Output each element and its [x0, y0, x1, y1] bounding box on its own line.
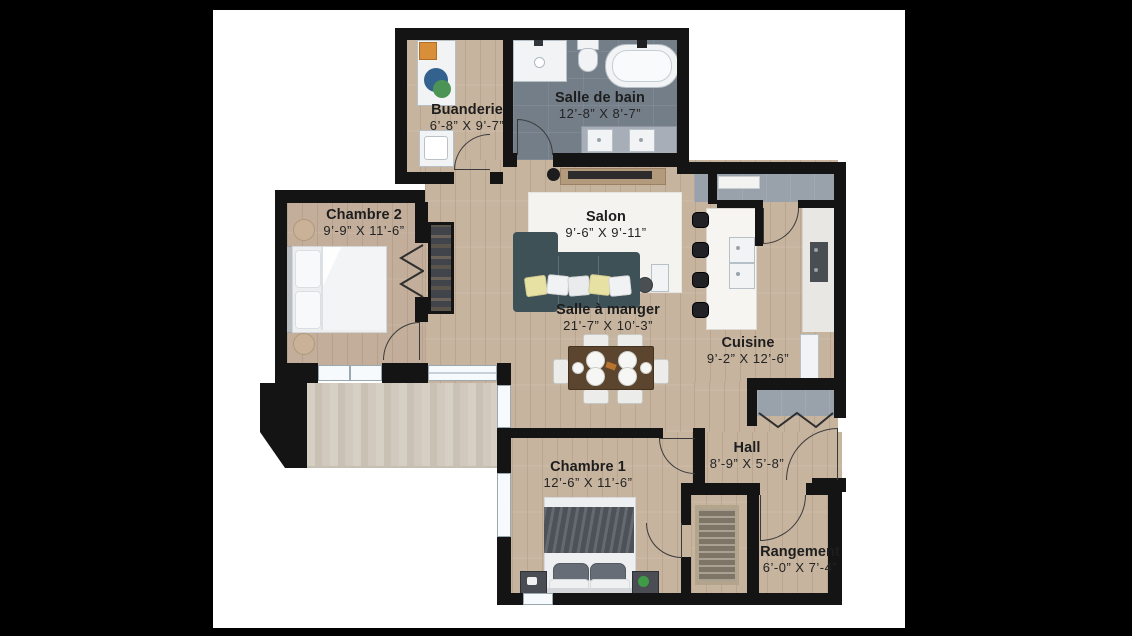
wall [275, 363, 318, 383]
fridge [800, 334, 819, 380]
sink-drain-icon [597, 138, 601, 142]
floor-plan: Buanderie 6’-8” X 9’-7” Salle de bain 12… [0, 0, 1132, 636]
wardrobe-closet [428, 222, 454, 314]
throw-pillow [546, 274, 570, 296]
bar-stool [692, 212, 709, 228]
plate-icon [586, 367, 605, 386]
wall [708, 174, 717, 204]
island-cooktop [729, 263, 755, 289]
wall [747, 483, 759, 605]
wall [395, 28, 689, 40]
throw-pillow [608, 275, 632, 297]
wall [755, 200, 763, 246]
wall [395, 28, 407, 184]
wall [395, 172, 454, 184]
wall [503, 153, 517, 167]
window [497, 385, 511, 428]
sink-drain-icon [639, 138, 643, 142]
bar-stool [692, 272, 709, 288]
wall [553, 593, 842, 605]
pouf [293, 219, 315, 241]
wall [415, 202, 428, 243]
wall [503, 38, 513, 165]
wall [689, 162, 834, 174]
wall [677, 40, 689, 174]
bar-stool [692, 242, 709, 258]
plate-icon [618, 367, 637, 386]
speaker-icon [547, 168, 560, 181]
bifold-door-icon [398, 244, 424, 298]
laundry-basket-icon [419, 42, 437, 60]
wall [497, 593, 523, 605]
throw-pillow [524, 275, 549, 298]
wall [497, 363, 511, 385]
toilet [578, 48, 598, 72]
stove-burner-icon [814, 268, 818, 272]
closet-shelving [695, 505, 739, 585]
wall [828, 490, 842, 600]
dining-chair [617, 389, 643, 404]
tv-icon [568, 171, 652, 179]
throw-pillow [567, 275, 591, 297]
bar-stool [692, 302, 709, 318]
wall [275, 190, 425, 203]
sink-drain-icon [736, 246, 740, 250]
plate-icon [640, 362, 652, 374]
laundry-sink-basin [424, 136, 448, 160]
wall [553, 153, 677, 167]
balcony-sliding-door [428, 365, 497, 381]
wall [415, 297, 428, 322]
side-table [651, 264, 669, 292]
floor-balcony [307, 383, 497, 467]
bed-blanket [544, 507, 634, 553]
bifold-door-icon [758, 412, 834, 429]
window [523, 593, 553, 605]
plant-icon [638, 576, 649, 587]
wall [747, 378, 846, 390]
laundry-pile-icon [433, 80, 451, 98]
bed-pillow [295, 250, 321, 288]
window [318, 365, 382, 381]
bed-pillow [295, 291, 321, 329]
bathtub-basin [612, 50, 672, 82]
shower-drain-icon [534, 57, 545, 68]
wall [681, 483, 691, 525]
dining-chair [583, 389, 609, 404]
balcony-edge [307, 466, 497, 468]
island-sink [729, 237, 755, 263]
wall [490, 172, 503, 184]
dining-chair [653, 359, 669, 384]
wall [497, 428, 663, 438]
window [497, 473, 511, 537]
pouf [293, 333, 315, 355]
sink-drain-icon [736, 272, 740, 276]
dining-chair [553, 359, 569, 384]
entry-door-leaf [718, 176, 760, 189]
stove-burner-icon [814, 248, 818, 252]
plate-icon [572, 362, 584, 374]
wall [747, 378, 757, 426]
wall [382, 363, 428, 383]
stove [810, 242, 828, 282]
nightstand-item-icon [527, 577, 537, 585]
shower-faucet-icon [534, 40, 543, 46]
wall [275, 190, 287, 383]
bed-duvet [321, 247, 386, 330]
balcony-angled-wall [260, 383, 308, 469]
wall [798, 200, 834, 208]
